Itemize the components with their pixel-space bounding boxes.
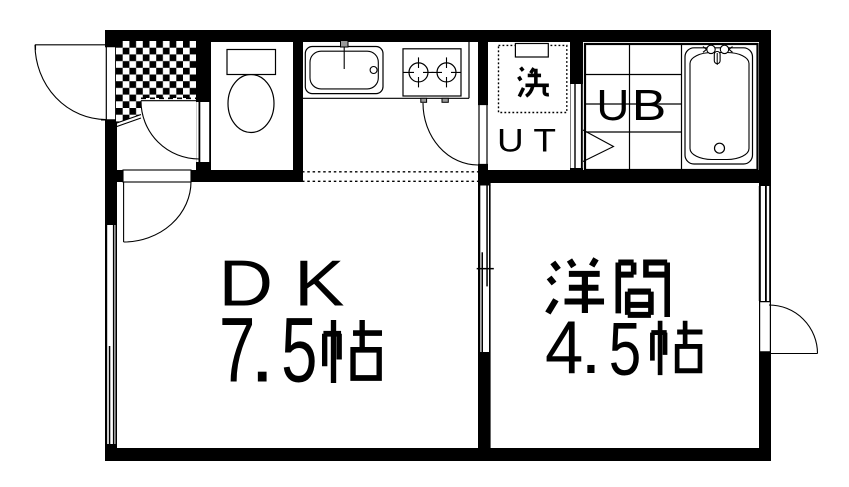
- svg-text:5: 5: [609, 307, 642, 391]
- svg-text:5: 5: [281, 300, 317, 402]
- svg-text:B: B: [632, 81, 667, 130]
- svg-text:.: .: [250, 300, 275, 402]
- svg-text:4: 4: [545, 305, 583, 389]
- svg-text:.: .: [581, 305, 602, 389]
- svg-text:U: U: [596, 81, 629, 130]
- svg-text:U T: U T: [497, 123, 556, 159]
